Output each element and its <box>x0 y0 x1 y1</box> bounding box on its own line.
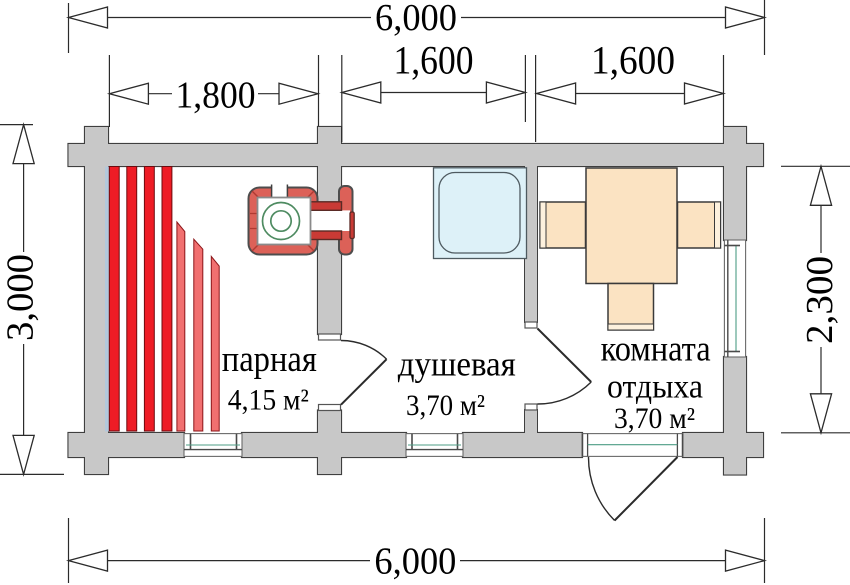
svg-text:2,300: 2,300 <box>799 256 841 344</box>
svg-text:3,000: 3,000 <box>0 254 42 341</box>
svg-text:1,600: 1,600 <box>394 38 474 83</box>
svg-text:4,15 м²: 4,15 м² <box>228 384 309 417</box>
svg-text:6,000: 6,000 <box>374 541 456 583</box>
svg-text:комната: комната <box>601 329 711 369</box>
svg-text:отдыха: отдыха <box>607 369 703 406</box>
svg-text:душевая: душевая <box>398 344 516 383</box>
svg-text:парная: парная <box>222 339 317 380</box>
svg-text:3,70 м²: 3,70 м² <box>406 389 485 422</box>
svg-text:1,600: 1,600 <box>591 38 675 83</box>
svg-text:6,000: 6,000 <box>375 0 457 39</box>
svg-text:1,800: 1,800 <box>176 75 256 117</box>
svg-text:3,70 м²: 3,70 м² <box>614 402 695 435</box>
